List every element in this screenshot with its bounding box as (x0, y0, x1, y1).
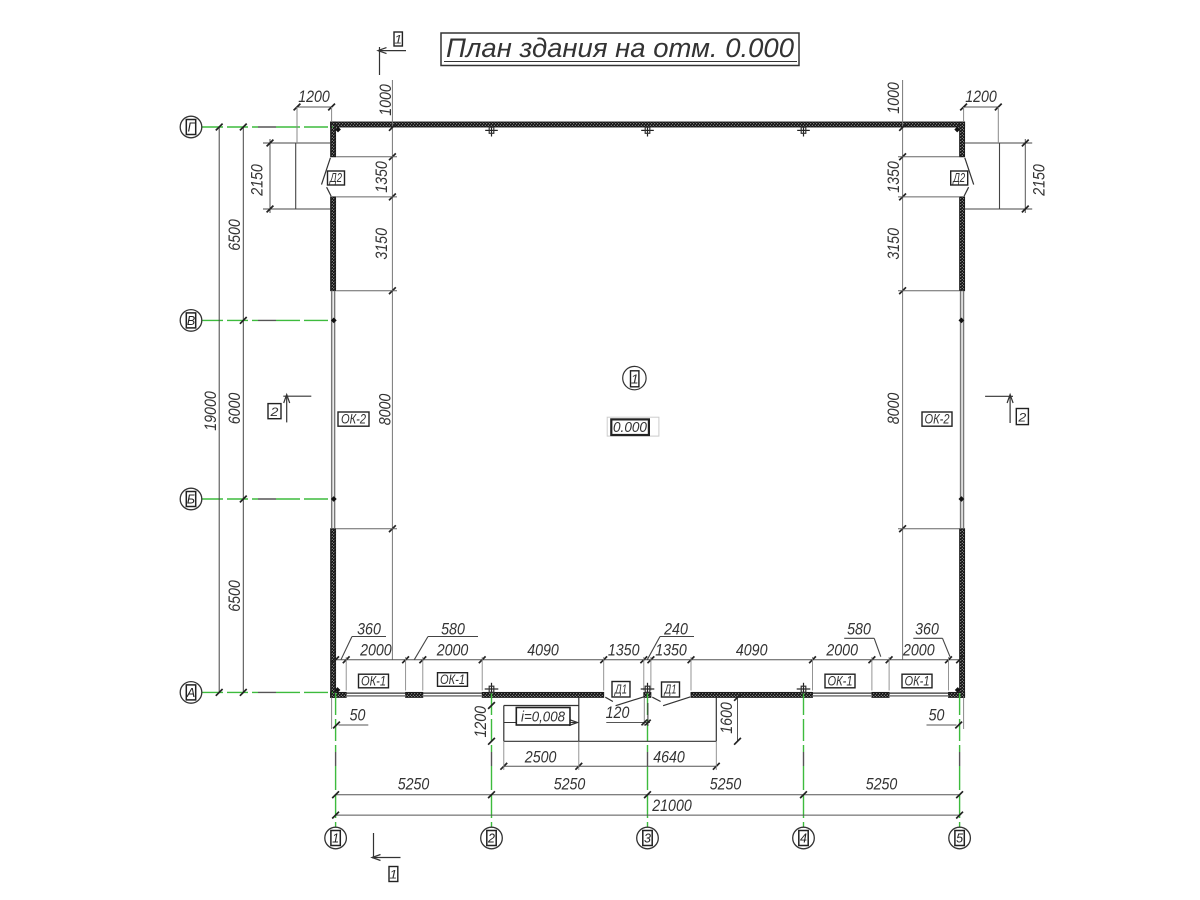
svg-text:Д2: Д2 (952, 171, 966, 185)
svg-text:8000: 8000 (885, 392, 903, 424)
svg-text:1: 1 (389, 868, 397, 882)
svg-text:5250: 5250 (554, 776, 586, 794)
svg-text:i=0,008: i=0,008 (521, 709, 565, 725)
svg-text:2000: 2000 (359, 642, 392, 660)
svg-text:19000: 19000 (202, 391, 220, 431)
svg-text:План здания на отм. 0.000: План здания на отм. 0.000 (446, 33, 794, 63)
svg-text:5250: 5250 (710, 776, 742, 794)
svg-text:1200: 1200 (965, 88, 997, 106)
svg-text:4640: 4640 (653, 749, 685, 767)
svg-text:2500: 2500 (524, 749, 557, 767)
svg-text:580: 580 (847, 621, 871, 639)
svg-text:6500: 6500 (226, 580, 244, 612)
svg-text:3150: 3150 (373, 227, 391, 259)
svg-text:Д2: Д2 (328, 171, 342, 185)
svg-text:3150: 3150 (885, 227, 903, 259)
svg-text:ОК-2: ОК-2 (341, 411, 366, 426)
svg-text:2: 2 (1017, 410, 1026, 424)
svg-text:4090: 4090 (736, 642, 768, 660)
svg-text:6500: 6500 (226, 219, 244, 251)
svg-text:Д1: Д1 (663, 683, 677, 697)
svg-text:1000: 1000 (885, 82, 903, 114)
svg-text:2150: 2150 (1030, 164, 1048, 197)
svg-text:Г: Г (188, 121, 196, 135)
svg-text:ОК-2: ОК-2 (925, 411, 950, 426)
svg-text:Б: Б (187, 493, 195, 507)
svg-text:1000: 1000 (377, 84, 395, 116)
svg-text:В: В (187, 314, 195, 328)
svg-text:6000: 6000 (226, 392, 244, 424)
svg-text:1200: 1200 (472, 705, 490, 737)
svg-text:Д1: Д1 (613, 682, 627, 696)
svg-text:21000: 21000 (651, 797, 692, 815)
svg-text:5250: 5250 (398, 776, 430, 794)
svg-text:А: А (186, 686, 195, 700)
svg-text:8000: 8000 (376, 393, 394, 425)
svg-text:360: 360 (915, 621, 939, 639)
svg-text:1350: 1350 (608, 642, 640, 660)
svg-text:1: 1 (332, 832, 339, 846)
svg-text:1: 1 (631, 373, 639, 387)
svg-text:1: 1 (394, 33, 402, 47)
svg-text:1200: 1200 (298, 88, 330, 106)
svg-text:50: 50 (929, 707, 946, 725)
svg-text:50: 50 (350, 707, 367, 725)
svg-text:1350: 1350 (655, 642, 687, 660)
svg-text:ОК-1: ОК-1 (361, 673, 386, 688)
svg-text:ОК-1: ОК-1 (440, 672, 465, 687)
svg-text:2: 2 (487, 832, 495, 846)
svg-text:1350: 1350 (373, 161, 391, 193)
svg-text:580: 580 (441, 620, 465, 638)
svg-text:2: 2 (269, 405, 278, 419)
svg-text:1350: 1350 (885, 161, 903, 193)
svg-text:5: 5 (956, 832, 963, 846)
svg-text:360: 360 (357, 620, 381, 638)
svg-text:4: 4 (800, 832, 807, 846)
svg-text:ОК-1: ОК-1 (905, 673, 930, 688)
svg-text:2150: 2150 (248, 164, 266, 197)
svg-text:2000: 2000 (902, 642, 935, 660)
svg-text:2000: 2000 (436, 642, 469, 660)
svg-text:120: 120 (606, 704, 630, 722)
svg-text:5250: 5250 (866, 776, 898, 794)
svg-text:240: 240 (663, 620, 688, 638)
svg-text:1600: 1600 (718, 702, 736, 734)
svg-text:2000: 2000 (826, 642, 859, 660)
svg-text:4090: 4090 (527, 642, 559, 660)
svg-text:ОК-1: ОК-1 (828, 673, 853, 688)
svg-text:3: 3 (644, 832, 651, 846)
svg-text:0.000: 0.000 (613, 420, 647, 436)
